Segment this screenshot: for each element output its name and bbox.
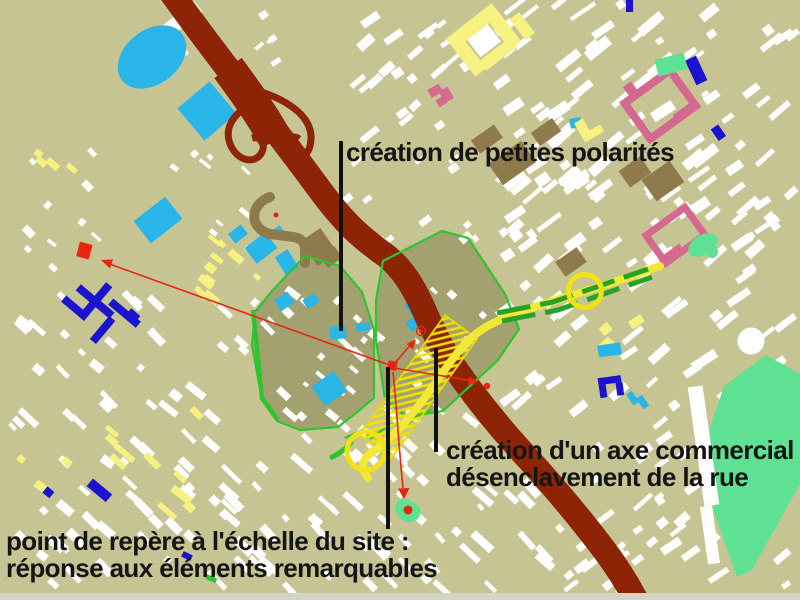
annotation-petites-polarites: création de petites polarités [346,139,674,166]
annotation-line1: création d'un axe commercial [446,437,794,464]
annotation-line1: point de repère à l'échelle du site : [6,528,437,555]
annotation-line2: désenclavement de la rue [446,464,794,491]
annotation-point-de-repere: point de repère à l'échelle du site : ré… [6,528,437,582]
annotation-line2: réponse aux éléments remarquables [6,555,437,582]
bottom-edge-strip [0,593,800,600]
annotation-axe-commercial: création d'un axe commercial désenclavem… [446,437,794,491]
urban-plan-map: création de petites polarités création d… [0,0,800,600]
map-canvas [0,0,800,600]
annotation-text: création de petites polarités [346,139,674,166]
white-circle-building [738,328,765,355]
